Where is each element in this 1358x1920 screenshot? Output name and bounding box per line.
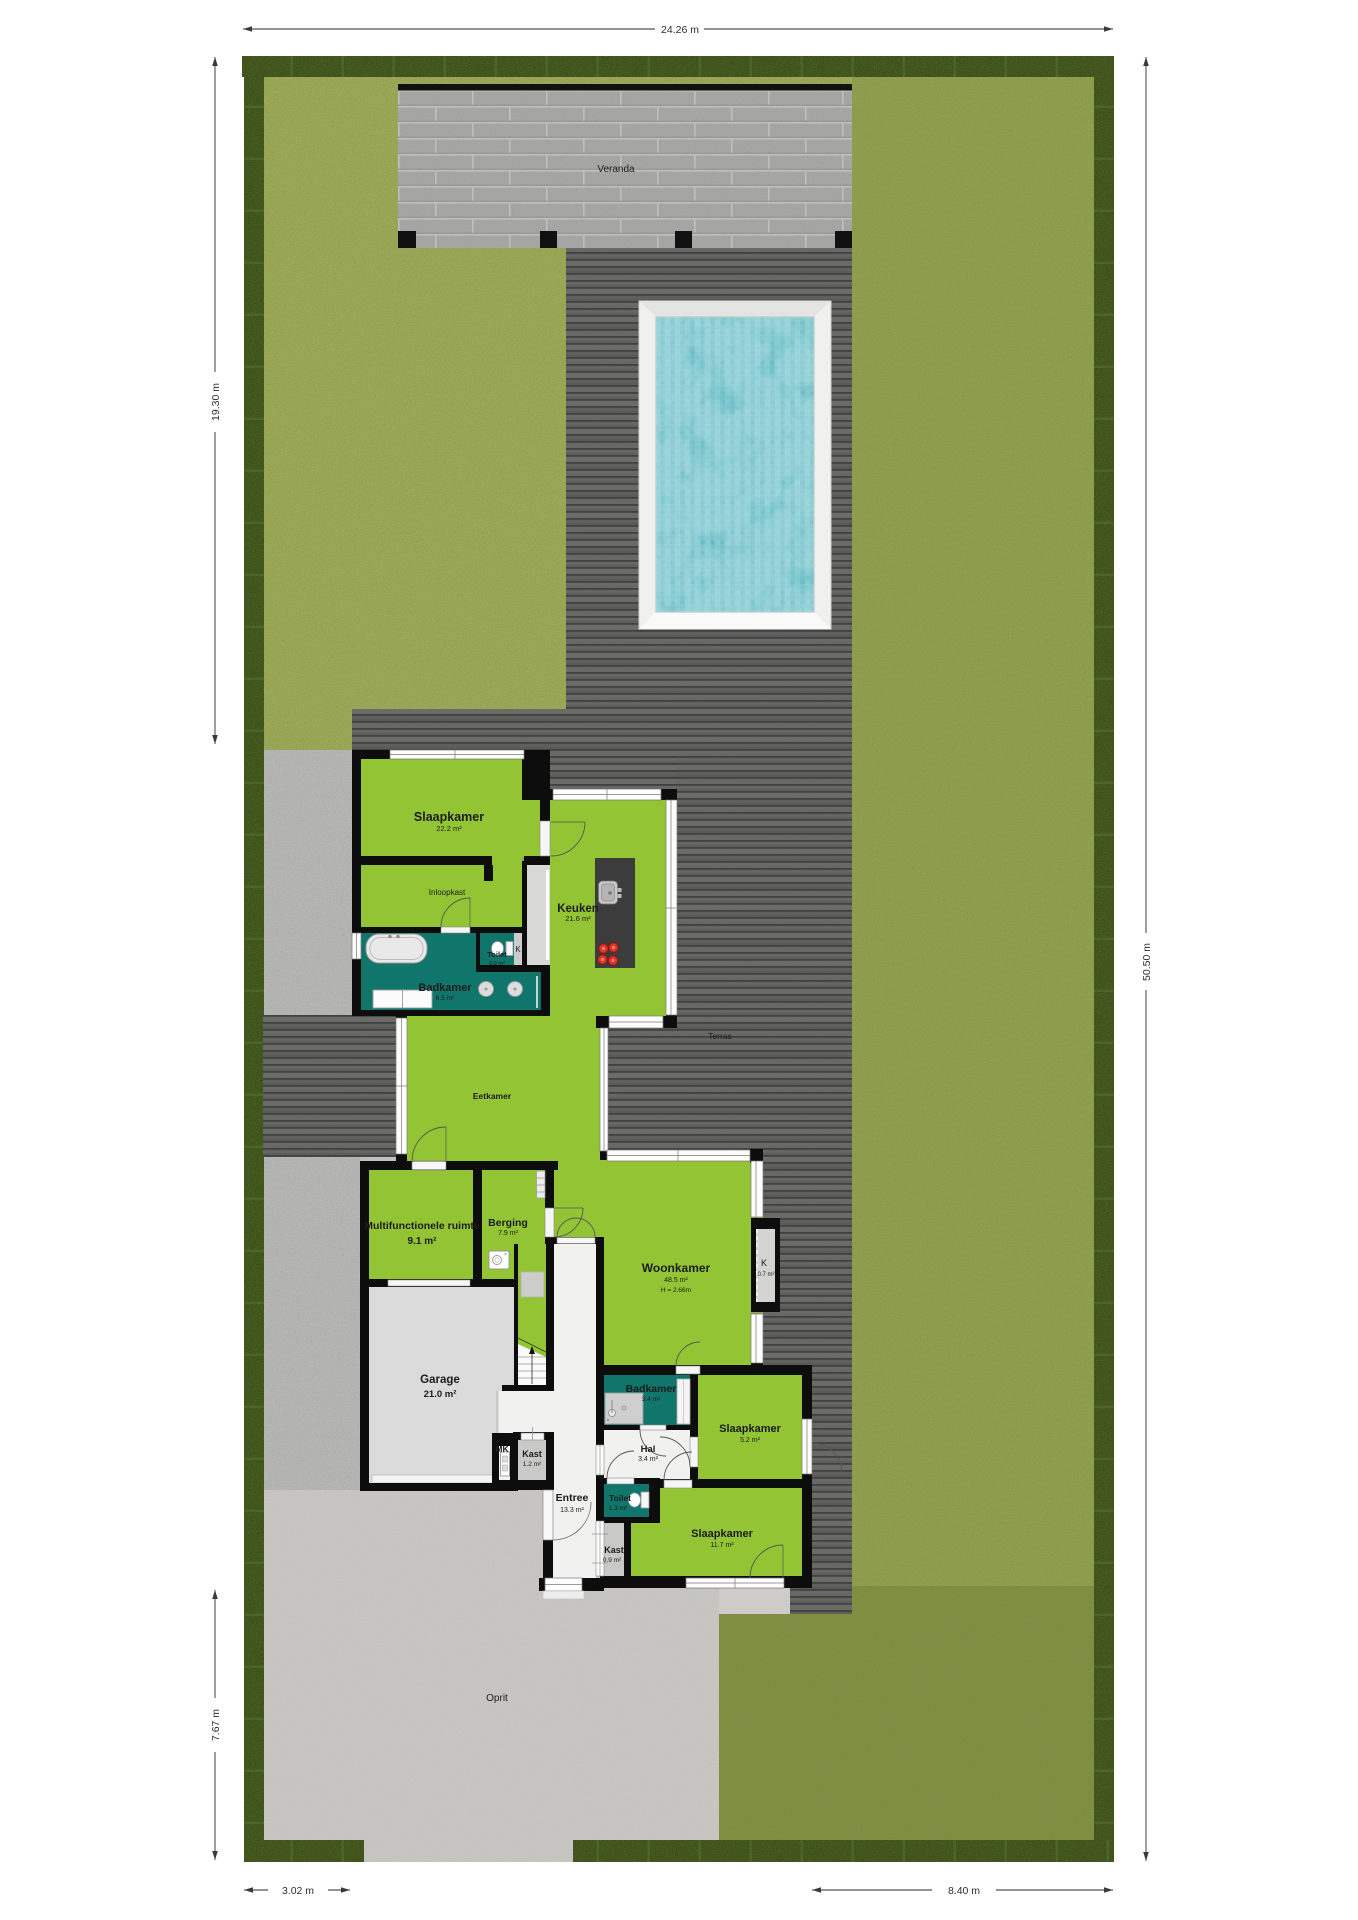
svg-text:Multifunctionele ruimte: Multifunctionele ruimte [364,1220,480,1232]
svg-text:7.9 m²: 7.9 m² [498,1230,519,1237]
svg-text:1.2 m²: 1.2 m² [523,1461,542,1468]
svg-text:9.1 m²: 9.1 m² [408,1236,438,1247]
svg-text:Berging: Berging [488,1217,528,1229]
svg-text:Slaapkamer: Slaapkamer [719,1423,781,1435]
svg-text:3.4 m²: 3.4 m² [642,1396,661,1403]
svg-text:H = 2.66m: H = 2.66m [661,1287,691,1294]
svg-text:Woonkamer: Woonkamer [642,1261,711,1275]
svg-text:Kast: Kast [604,1545,624,1555]
svg-text:Inloopkast: Inloopkast [429,888,466,897]
svg-text:Badkamer: Badkamer [626,1383,677,1395]
svg-text:Eetkamer: Eetkamer [473,1091,512,1101]
svg-text:Veranda: Veranda [597,164,635,175]
svg-text:Toilet: Toilet [487,950,507,959]
svg-text:Slaapkamer: Slaapkamer [691,1528,753,1540]
svg-text:Toilet: Toilet [609,1493,631,1503]
svg-text:21.0 m²: 21.0 m² [424,1389,457,1400]
svg-text:3.4 m²: 3.4 m² [638,1456,659,1463]
svg-text:5.2 m²: 5.2 m² [740,1437,761,1444]
svg-text:11.7 m²: 11.7 m² [710,1542,734,1549]
svg-text:22.2 m²: 22.2 m² [436,824,462,833]
svg-text:21.6 m²: 21.6 m² [565,914,591,923]
svg-text:Hal: Hal [641,1444,656,1455]
svg-text:1.3 m²: 1.3 m² [609,1505,628,1512]
svg-text:19.30 m: 19.30 m [210,383,222,421]
svg-text:Kast: Kast [522,1449,542,1459]
svg-text:MK: MK [495,1444,509,1454]
svg-text:0.9 m²: 0.9 m² [603,1557,622,1564]
svg-text:Slaapkamer: Slaapkamer [414,810,484,824]
svg-text:8.40 m: 8.40 m [948,1885,980,1897]
svg-text:50.50 m: 50.50 m [1141,943,1153,981]
svg-text:48.5 m²: 48.5 m² [664,1277,688,1284]
svg-text:6.5 m²: 6.5 m² [436,995,455,1002]
svg-text:K: K [515,945,521,954]
svg-text:Garage: Garage [420,1374,460,1386]
svg-text:13.3 m²: 13.3 m² [560,1507,584,1514]
svg-text:0.7 m²: 0.7 m² [757,1272,774,1278]
svg-text:3.02 m: 3.02 m [282,1885,314,1897]
svg-text:Entree: Entree [556,1492,589,1504]
svg-text:24.26 m: 24.26 m [661,24,699,36]
svg-text:Oprit: Oprit [486,1693,508,1704]
svg-text:Terras: Terras [708,1031,732,1041]
svg-text:Badkamer: Badkamer [418,982,472,994]
svg-text:K: K [761,1258,767,1268]
svg-text:0.9 m²: 0.9 m² [489,961,505,967]
svg-text:7.67 m: 7.67 m [210,1709,222,1741]
